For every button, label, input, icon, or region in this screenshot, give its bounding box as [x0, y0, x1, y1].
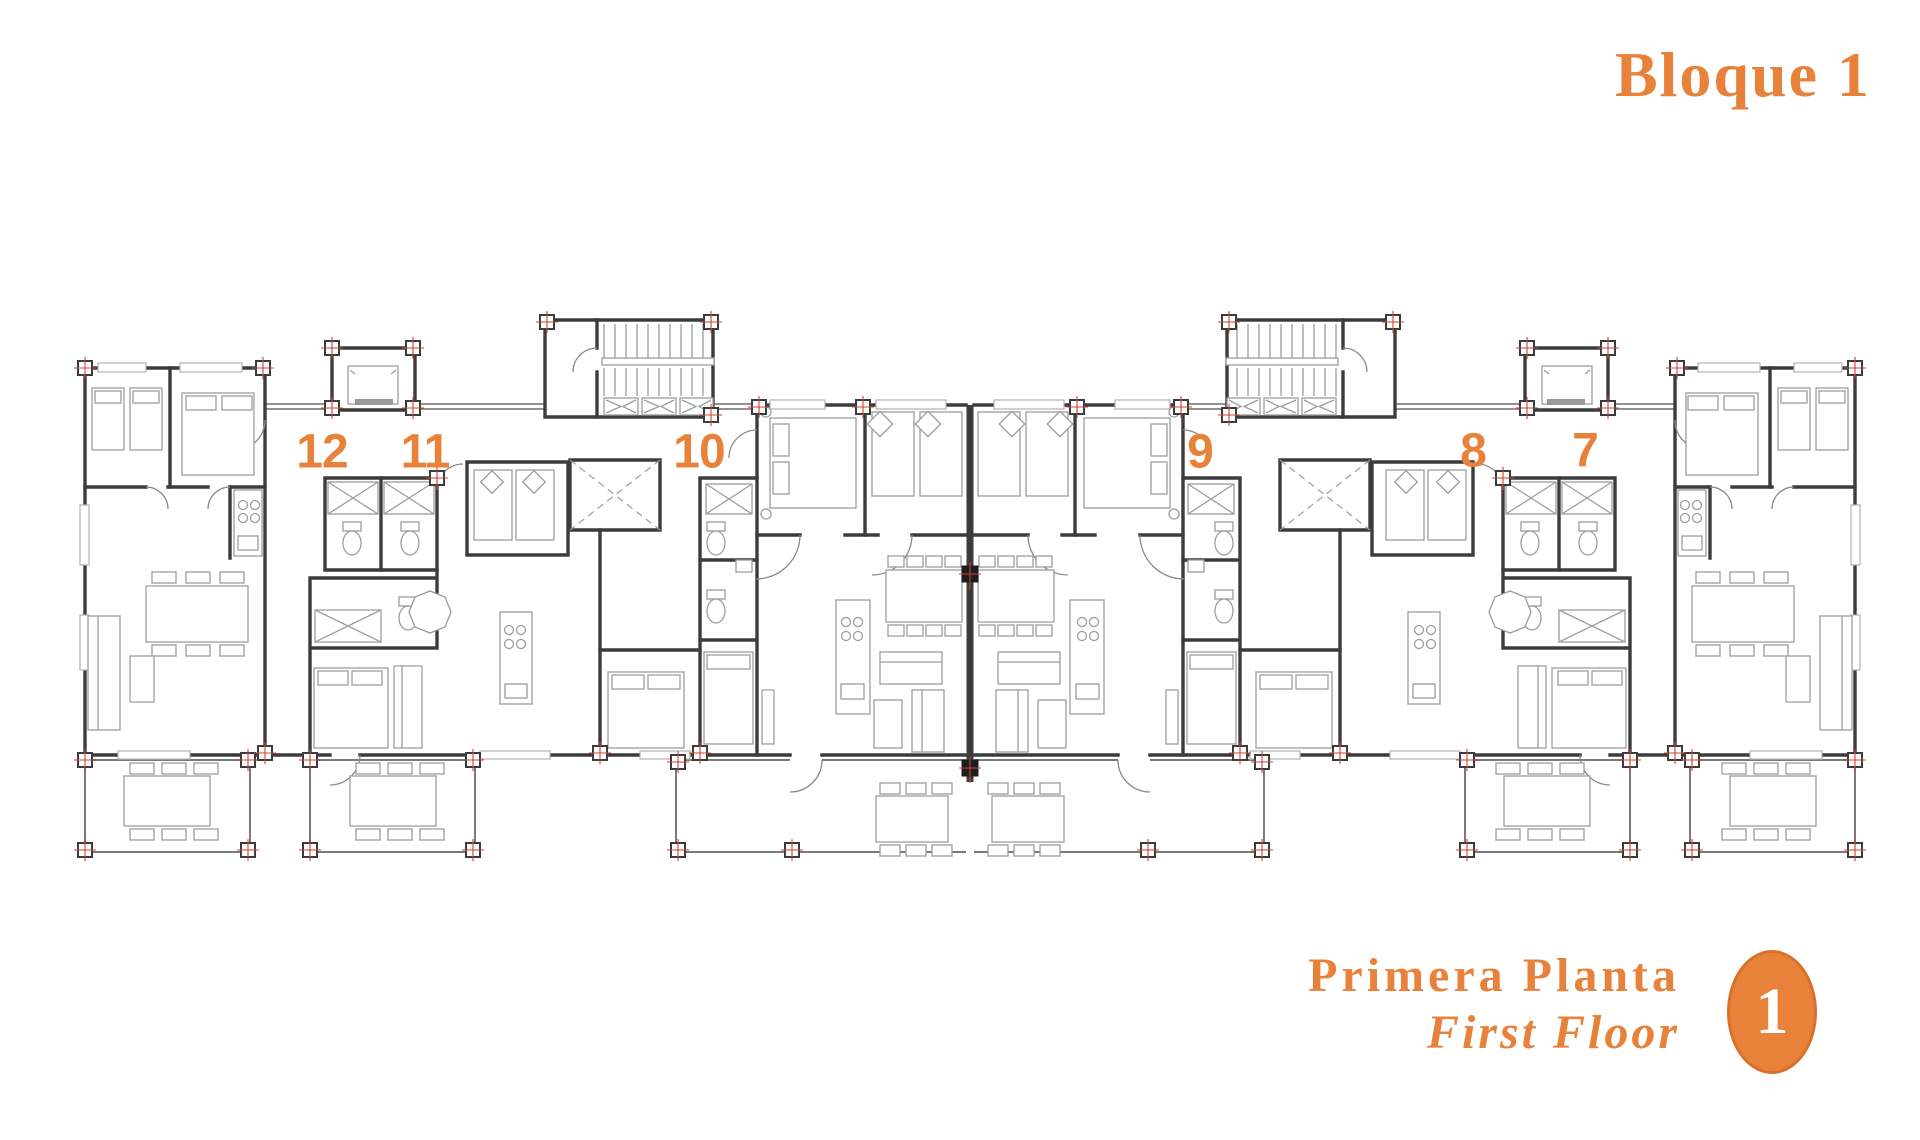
plan-left-half: [74, 311, 966, 861]
floor-name-spanish: Primera Planta: [1030, 948, 1680, 1005]
floor-number: 1: [1756, 974, 1789, 1050]
floor-number-badge: 1: [1727, 950, 1817, 1074]
unit-label-9: 9: [1187, 425, 1213, 480]
unit-label-11: 11: [401, 425, 450, 480]
plan-right-half: [974, 311, 1866, 861]
unit-label-12: 12: [296, 425, 347, 480]
floor-plan-page: Bloque 1 121110987 Primera Planta First …: [0, 0, 1920, 1140]
floor-name-english: First Floor: [1030, 1005, 1680, 1062]
page-title: Bloque 1: [1615, 38, 1871, 112]
unit-label-7: 7: [1572, 424, 1598, 479]
unit-label-10: 10: [673, 425, 724, 480]
floor-caption: Primera Planta First Floor: [1030, 948, 1680, 1061]
unit-label-8: 8: [1460, 424, 1486, 479]
